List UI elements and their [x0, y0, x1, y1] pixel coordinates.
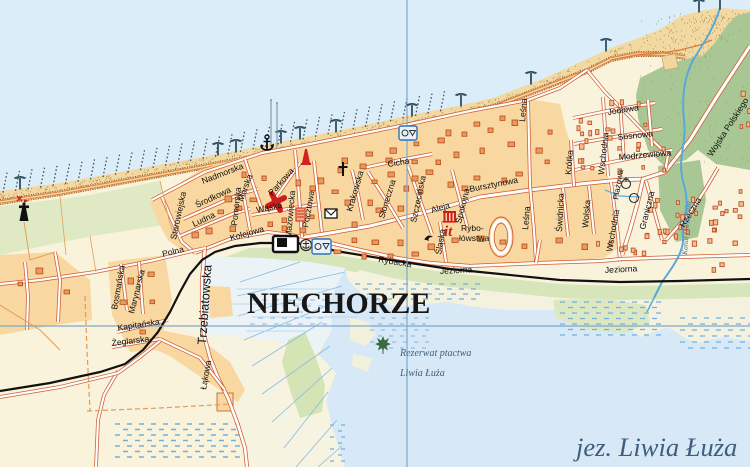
svg-text:Leśna: Leśna: [520, 206, 532, 230]
svg-text:Jeziorna: Jeziorna: [605, 263, 638, 275]
svg-text:Leśna: Leśna: [517, 98, 529, 122]
svg-text:Świdnicka: Świdnicka: [553, 193, 566, 232]
svg-text:Liwia Łuża: Liwia Łuża: [399, 368, 445, 379]
svg-text:łówstwa: łówstwa: [459, 233, 490, 243]
svg-text:Rybo-: Rybo-: [461, 223, 484, 233]
svg-text:Rezerwat ptactwa: Rezerwat ptactwa: [399, 348, 471, 359]
svg-text:Jeziorna: Jeziorna: [440, 264, 473, 276]
svg-text:NIECHORZE: NIECHORZE: [247, 287, 430, 320]
svg-text:jez. Liwia Łuża: jez. Liwia Łuża: [573, 432, 737, 462]
